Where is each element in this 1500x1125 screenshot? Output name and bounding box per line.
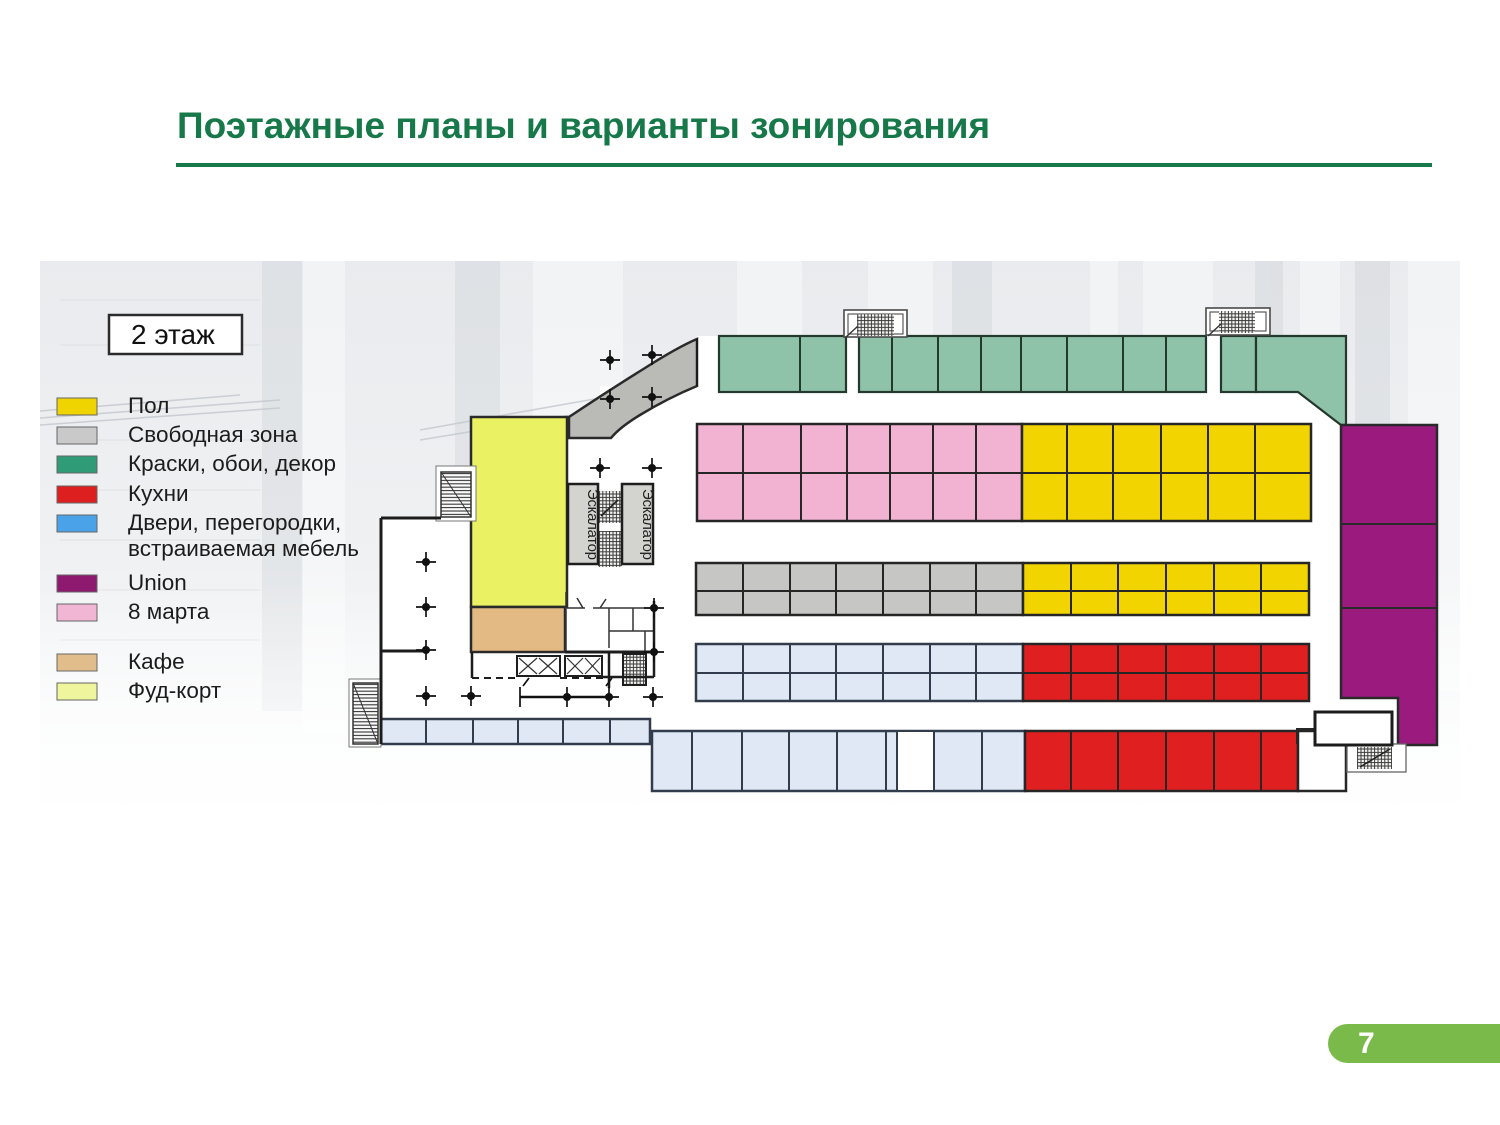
svg-text:Свободная зона: Свободная зона: [128, 422, 298, 447]
svg-text:Эскалатор: Эскалатор: [584, 489, 601, 560]
svg-text:Кухни: Кухни: [128, 481, 189, 506]
svg-text:2 этаж: 2 этаж: [131, 319, 215, 350]
svg-text:Краски, обои, декор: Краски, обои, декор: [128, 451, 336, 476]
svg-text:Эскалатор: Эскалатор: [639, 489, 656, 560]
svg-text:8 марта: 8 марта: [128, 599, 210, 624]
svg-text:Union: Union: [128, 570, 187, 595]
svg-text:встраиваемая мебель: встраиваемая мебель: [128, 536, 359, 561]
svg-text:Пол: Пол: [128, 393, 169, 418]
svg-text:Кафе: Кафе: [128, 649, 185, 674]
svg-text:Фуд-корт: Фуд-корт: [128, 678, 221, 703]
svg-text:Двери, перегородки,: Двери, перегородки,: [128, 510, 341, 535]
